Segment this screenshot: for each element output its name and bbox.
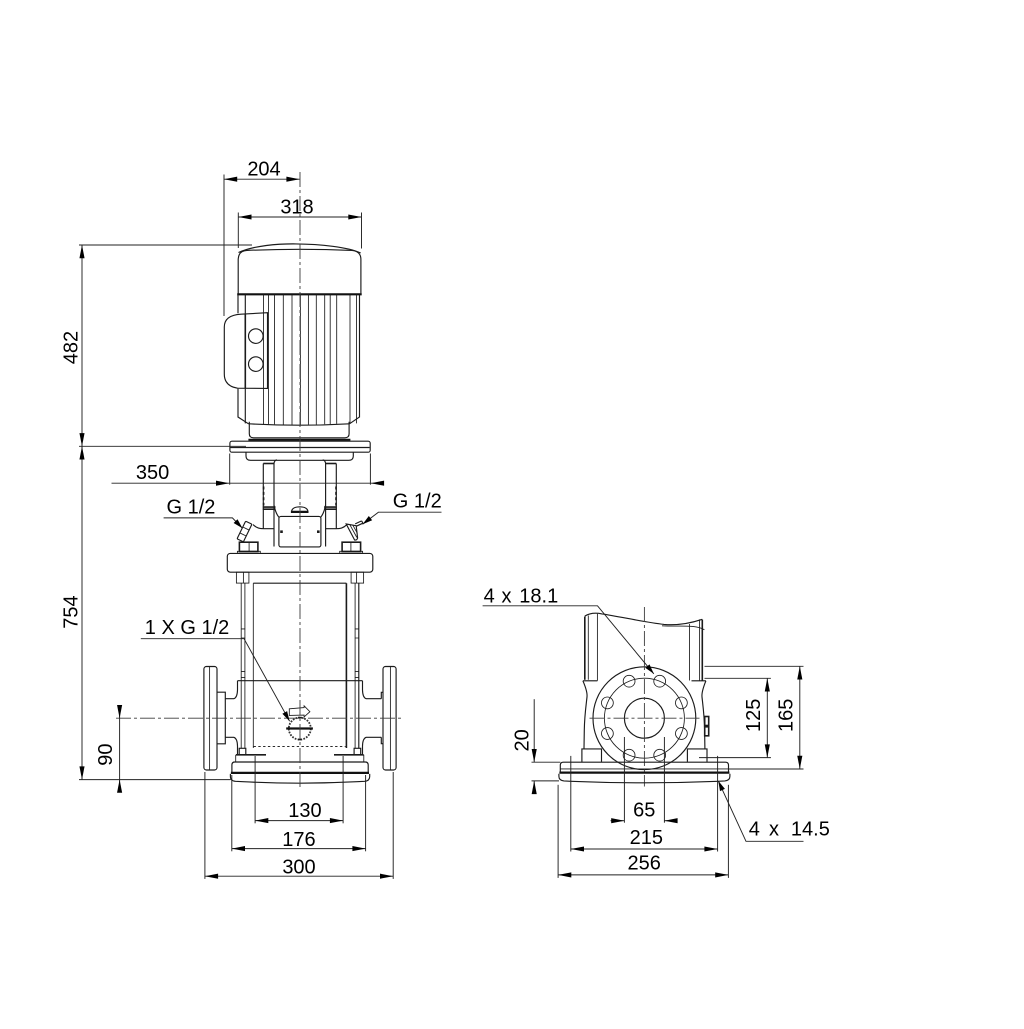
svg-text:18.1: 18.1 <box>519 586 558 608</box>
svg-text:350: 350 <box>136 462 169 484</box>
svg-text:1 X G 1/2: 1 X G 1/2 <box>145 617 230 639</box>
svg-text:4: 4 <box>749 818 760 840</box>
svg-text:G 1/2: G 1/2 <box>167 497 216 519</box>
svg-text:G 1/2: G 1/2 <box>393 491 442 513</box>
svg-text:300: 300 <box>282 857 315 879</box>
svg-text:65: 65 <box>633 799 655 821</box>
svg-text:130: 130 <box>288 800 321 822</box>
svg-text:125: 125 <box>743 699 765 732</box>
svg-text:204: 204 <box>247 159 280 181</box>
svg-text:x: x <box>769 818 779 840</box>
svg-text:482: 482 <box>60 331 82 364</box>
svg-text:20: 20 <box>511 729 533 751</box>
svg-text:x: x <box>502 586 512 608</box>
svg-text:90: 90 <box>95 743 117 765</box>
svg-text:4: 4 <box>484 586 495 608</box>
svg-text:256: 256 <box>628 853 661 875</box>
svg-text:176: 176 <box>282 829 315 851</box>
svg-text:14.5: 14.5 <box>791 818 830 840</box>
svg-text:754: 754 <box>60 595 82 628</box>
svg-text:215: 215 <box>630 827 663 849</box>
svg-text:165: 165 <box>775 699 797 732</box>
svg-text:318: 318 <box>280 197 313 219</box>
